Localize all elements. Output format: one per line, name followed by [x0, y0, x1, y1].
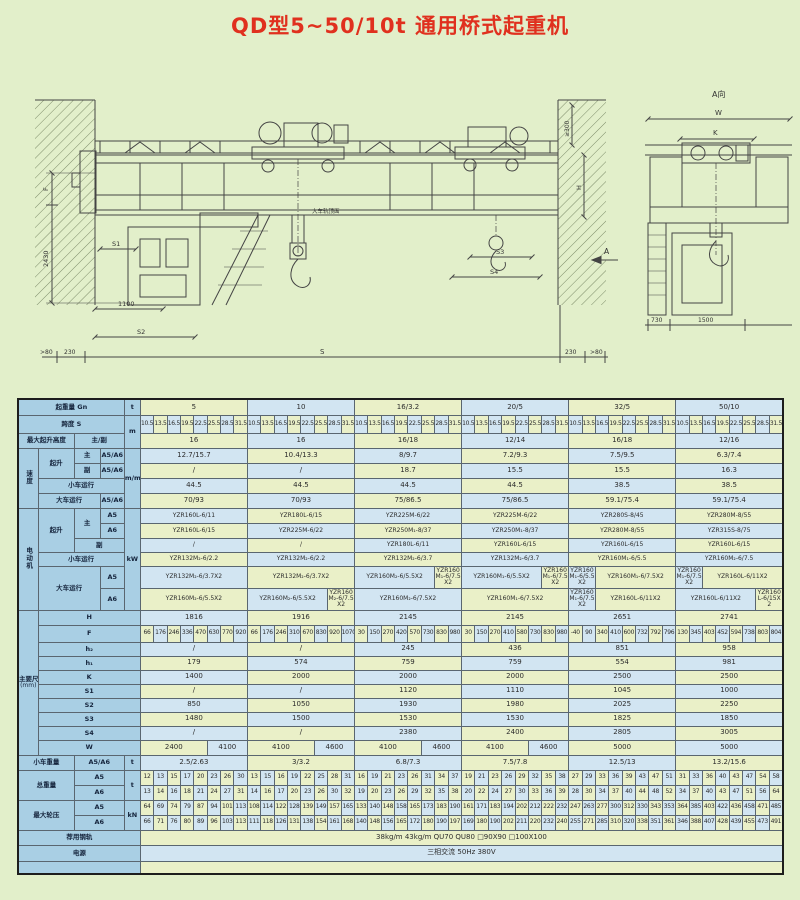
table-cell: 25.5: [636, 415, 649, 433]
table-cell: 14: [154, 785, 167, 800]
table-cell: 4100: [462, 740, 529, 755]
row-label: 大车运行: [38, 493, 100, 508]
table-cell: 89: [194, 815, 207, 830]
table-cell: 58: [769, 770, 783, 785]
table-cell: 10.5: [354, 415, 367, 433]
table-cell: 1120: [354, 684, 461, 698]
table-cell: 1050: [247, 698, 354, 712]
table-cell: /: [247, 463, 354, 478]
table-cell: 16: [261, 785, 274, 800]
table-cell: 5000: [676, 740, 783, 755]
table-cell: 13.5: [582, 415, 595, 433]
table-cell: 738: [743, 625, 756, 642]
table-cell: 69: [154, 800, 167, 815]
table-cell: 330: [636, 800, 649, 815]
table-cell: 128: [288, 800, 301, 815]
table-cell: 20: [462, 785, 475, 800]
table-cell: 1530: [462, 712, 569, 726]
row-label: A5/A6: [100, 463, 124, 478]
table-cell: 22.5: [194, 415, 207, 433]
table-cell: 19.5: [395, 415, 408, 433]
table-cell: 730: [421, 625, 434, 642]
table-cell: YZR250M₁-8/37: [354, 523, 461, 538]
table-cell: YZR132M₂-6/2.2: [140, 552, 247, 566]
table-cell: 161: [328, 815, 341, 830]
table-cell: 407: [702, 815, 715, 830]
table-cell: 28.5: [542, 415, 555, 433]
table-cell: 320: [622, 815, 635, 830]
table-cell: 312: [622, 800, 635, 815]
row-label: 主要尺寸(mm): [18, 610, 38, 755]
table-cell: YZR180L-6/11: [354, 538, 461, 552]
row-label: m/min: [124, 448, 140, 508]
table-cell: 52: [662, 785, 675, 800]
table-cell: 23: [207, 770, 220, 785]
table-cell: 1850: [676, 712, 783, 726]
row-label: 起重量 Gn: [18, 399, 124, 415]
table-cell: 179: [140, 656, 247, 670]
table-cell: 1070: [341, 625, 354, 642]
table-cell: 980: [448, 625, 461, 642]
table-cell: 113: [234, 815, 247, 830]
table-cell: 1480: [140, 712, 247, 726]
table-cell: 1980: [462, 698, 569, 712]
table-cell: 232: [542, 815, 555, 830]
table-cell: 30: [354, 625, 367, 642]
table-cell: 56: [756, 785, 769, 800]
table-cell: YZR160L-6/15: [462, 538, 569, 552]
table-cell: 133: [354, 800, 367, 815]
table-cell: 2400: [140, 740, 207, 755]
table-cell: 16.5: [274, 415, 287, 433]
table-cell: 6.8/7.3: [354, 755, 461, 770]
table-cell: 759: [354, 656, 461, 670]
table-cell: 51: [662, 770, 675, 785]
table-cell: 13.2/15.6: [676, 755, 783, 770]
table-cell: 343: [649, 800, 662, 815]
table-cell: 90: [582, 625, 595, 642]
table-cell: 43: [729, 770, 742, 785]
table-cell: 183: [488, 800, 501, 815]
table-cell: 2145: [354, 610, 461, 625]
table-cell: 194: [502, 800, 515, 815]
table-cell: YZR225M-6/22: [354, 508, 461, 523]
table-cell: 18: [180, 785, 193, 800]
table-cell: YZR132M₂-6/3.7X2: [140, 566, 247, 588]
table-cell: YZR132M₂-6/3.7: [354, 552, 461, 566]
table-cell: 2741: [676, 610, 783, 625]
row-label: A5: [100, 566, 124, 588]
table-cell: 436: [729, 800, 742, 815]
table-cell: 20: [194, 770, 207, 785]
row-label: A6: [74, 785, 124, 800]
table-cell: 39: [555, 785, 568, 800]
table-cell: 66: [247, 625, 260, 642]
row-label: t: [124, 755, 140, 770]
table-cell: 40: [716, 770, 729, 785]
table-cell: 830: [435, 625, 448, 642]
table-cell: 140: [368, 800, 381, 815]
table-cell: 30: [515, 785, 528, 800]
table-cell: /: [140, 684, 247, 698]
table-cell: 161: [462, 800, 475, 815]
table-cell: 36: [702, 770, 715, 785]
row-label: 小车重量: [18, 755, 74, 770]
table-cell: 246: [167, 625, 180, 642]
row-label: A5/A6: [74, 755, 124, 770]
table-cell: 285: [595, 815, 608, 830]
table-cell: 16.5: [488, 415, 501, 433]
table-cell: 165: [408, 800, 421, 815]
table-cell: 26: [314, 785, 327, 800]
table-cell: 554: [569, 656, 676, 670]
crane-drawing: 大车轨顶面 F 2430: [0, 30, 800, 400]
table-cell: 87: [194, 800, 207, 815]
row-label: 主: [74, 448, 100, 463]
table-cell: 31: [421, 770, 434, 785]
table-cell: 31: [234, 785, 247, 800]
table-cell: 156: [381, 815, 394, 830]
table-cell: 19: [462, 770, 475, 785]
table-cell: 10.5: [247, 415, 260, 433]
row-label: kW: [124, 508, 140, 610]
table-cell: YZR160L-6/15X2: [756, 588, 783, 610]
table-cell: 76: [167, 815, 180, 830]
row-label: H: [38, 610, 140, 625]
row-label: h₁: [38, 656, 140, 670]
table-cell: 34: [435, 770, 448, 785]
table-cell: 16.5: [167, 415, 180, 433]
table-cell: 17: [274, 785, 287, 800]
table-cell: 420: [395, 625, 408, 642]
table-cell: 22.5: [729, 415, 742, 433]
table-cell: 47: [743, 770, 756, 785]
table-cell: 75/86.5: [462, 493, 569, 508]
table-cell: 12.7/15.7: [140, 448, 247, 463]
table-cell: 410: [502, 625, 515, 642]
row-label: 小车运行: [38, 478, 124, 493]
table-cell: 29: [515, 770, 528, 785]
table-cell: 148: [368, 815, 381, 830]
table-cell: 4600: [528, 740, 568, 755]
table-cell: 31: [676, 770, 689, 785]
table-cell: 245: [354, 642, 461, 656]
table-cell: 16/3.2: [354, 399, 461, 415]
table-cell: 48: [649, 785, 662, 800]
row-label: A5: [74, 770, 124, 785]
row-label: 电动机: [18, 508, 38, 610]
dim-ge300: ≥300: [564, 120, 571, 137]
table-cell: YZR160L-6/11: [140, 508, 247, 523]
table-cell: YZR180L-6/15: [247, 508, 354, 523]
table-cell: 255: [569, 815, 582, 830]
table-cell: 30: [328, 785, 341, 800]
table-cell: 22.5: [622, 415, 635, 433]
table-cell: 20: [288, 785, 301, 800]
row-label: 副: [74, 538, 124, 552]
table-cell: 13: [140, 785, 153, 800]
table-cell: 96: [207, 815, 220, 830]
table-cell: 580: [515, 625, 528, 642]
table-cell: 25: [314, 770, 327, 785]
row-label: t: [124, 770, 140, 800]
table-cell: /: [247, 642, 354, 656]
table-cell: 351: [649, 815, 662, 830]
table-cell: 13.5: [475, 415, 488, 433]
table-cell: 270: [381, 625, 394, 642]
table-cell: YZR160M₁-6/7.5X2: [462, 588, 569, 610]
table-cell: 1530: [354, 712, 461, 726]
table-cell: YZR132M₂-6/3.7: [462, 552, 569, 566]
table-cell: 473: [756, 815, 769, 830]
table-cell: 10.5: [140, 415, 153, 433]
table-cell: 150: [368, 625, 381, 642]
table-cell: 22: [475, 785, 488, 800]
table-cell: 130: [676, 625, 689, 642]
table-cell: 2.5/2.63: [140, 755, 247, 770]
table-cell: 70/93: [247, 493, 354, 508]
table-cell: 38: [448, 785, 461, 800]
dim-230-right: 230: [565, 349, 577, 356]
table-cell: 222: [542, 800, 555, 815]
row-label: 起升: [38, 508, 74, 552]
row-label: h₂: [38, 642, 140, 656]
table-cell: 44: [636, 785, 649, 800]
aux-trolley: [455, 127, 528, 270]
table-cell: 2000: [247, 670, 354, 684]
table-cell: YZR160M₁-6/5.5X2: [462, 566, 542, 588]
row-label: A6: [100, 523, 124, 538]
table-cell: 21: [194, 785, 207, 800]
table-cell: 410: [609, 625, 622, 642]
table-cell: 570: [408, 625, 421, 642]
table-cell: 28.5: [328, 415, 341, 433]
dim-s3-s4: S3 S4: [452, 248, 540, 277]
dim-span-s: S: [320, 348, 325, 356]
table-cell: 150: [475, 625, 488, 642]
table-cell: 173: [421, 800, 434, 815]
table-cell: 31.5: [234, 415, 247, 433]
table-cell: 71: [154, 815, 167, 830]
table-cell: 180: [475, 815, 488, 830]
table-cell: 7.2/9.3: [462, 448, 569, 463]
table-cell: YZR160L-6/15: [569, 538, 676, 552]
table-cell: 16: [140, 433, 247, 448]
table-cell: 27: [569, 770, 582, 785]
table-cell: /: [140, 463, 247, 478]
table-cell: 980: [555, 625, 568, 642]
table-cell: YZR280M-8/55: [676, 508, 783, 523]
table-cell: YZR160M₁-6/7.5X2: [595, 566, 675, 588]
table-cell: 180: [421, 815, 434, 830]
table-cell: 31.5: [448, 415, 461, 433]
table-cell: 263: [582, 800, 595, 815]
table-cell: 850: [140, 698, 247, 712]
row-label: A5/A6: [100, 448, 124, 463]
table-cell: 131: [288, 815, 301, 830]
table-cell: 59.1/75.4: [569, 493, 676, 508]
right-wall-hatch: [558, 100, 606, 363]
end-view-title: A向: [712, 89, 725, 99]
table-cell: YZR280M-8/55: [569, 523, 676, 538]
row-label: S1: [38, 684, 140, 698]
table-cell: 2145: [462, 610, 569, 625]
table-cell: 35: [435, 785, 448, 800]
row-label: t: [124, 399, 140, 415]
table-cell: 32: [421, 785, 434, 800]
table-cell: 2000: [354, 670, 461, 684]
table-cell: 1110: [462, 684, 569, 698]
table-cell: 79: [180, 800, 193, 815]
table-cell: 2400: [462, 726, 569, 740]
table-cell: YZR160M₂-6/5.5X2: [247, 588, 327, 610]
table-cell: 5000: [569, 740, 676, 755]
table-cell: 12/16: [676, 433, 783, 448]
table-cell: 310: [288, 625, 301, 642]
row-label: [18, 861, 140, 874]
table-cell: 353: [662, 800, 675, 815]
table-cell: 22.5: [408, 415, 421, 433]
table-cell: 16: [354, 770, 367, 785]
table-cell: YZR160M₁-6/7.5X2: [676, 566, 703, 588]
table-cell: 13: [247, 770, 260, 785]
table-cell: 29: [582, 770, 595, 785]
table-cell: YZR160M₂-6/5.5X2: [140, 588, 247, 610]
table-cell: 436: [462, 642, 569, 656]
table-cell: 21: [381, 770, 394, 785]
table-cell: 338: [636, 815, 649, 830]
table-cell: YZR250M₁-8/37: [462, 523, 569, 538]
table-cell: 50/10: [676, 399, 783, 415]
table-cell: 38: [555, 770, 568, 785]
driver-cab: [128, 213, 270, 305]
dim-k: K: [713, 129, 718, 137]
table-cell: 157: [328, 800, 341, 815]
table-cell: 36: [542, 785, 555, 800]
table-cell: 470: [194, 625, 207, 642]
table-cell: 958: [676, 642, 783, 656]
table-cell: 47: [649, 770, 662, 785]
table-cell: 770: [221, 625, 234, 642]
table-cell: 40: [622, 785, 635, 800]
table-cell: 44.5: [247, 478, 354, 493]
row-label: A5/A6: [100, 493, 124, 508]
table-cell: 13.5: [368, 415, 381, 433]
table-cell: 13.5: [154, 415, 167, 433]
table-cell: 31: [341, 770, 354, 785]
table-cell: 23: [395, 770, 408, 785]
table-cell: 113: [234, 800, 247, 815]
row-label: A5: [74, 800, 124, 815]
table-cell: 33: [689, 770, 702, 785]
table-cell: 26: [221, 770, 234, 785]
row-label: 荐用钢轨: [18, 830, 140, 845]
table-cell: 19.5: [502, 415, 515, 433]
table-cell: 25.5: [421, 415, 434, 433]
table-cell: 1930: [354, 698, 461, 712]
dim-2430: 2430: [42, 250, 50, 267]
table-cell: 12.5/13: [569, 755, 676, 770]
table-cell: 300: [609, 800, 622, 815]
table-cell: 212: [528, 800, 541, 815]
table-cell: 74: [167, 800, 180, 815]
table-cell: 981: [676, 656, 783, 670]
table-cell: 25.5: [743, 415, 756, 433]
row-label: W: [38, 740, 140, 755]
dim-h: H: [575, 185, 583, 190]
table-cell: 32: [341, 785, 354, 800]
table-cell: 94: [207, 800, 220, 815]
table-cell: 1500: [247, 712, 354, 726]
table-cell: 1400: [140, 670, 247, 684]
row-label: 主/副: [74, 433, 124, 448]
table-cell: 23: [381, 785, 394, 800]
table-cell: 7.5/7.8: [462, 755, 569, 770]
dim-s4: S4: [490, 268, 498, 276]
table-cell: 13: [154, 770, 167, 785]
table-cell: 364: [676, 800, 689, 815]
row-label: 最大起升高度: [18, 433, 74, 448]
table-cell: 10.5: [462, 415, 475, 433]
table-cell: 920: [234, 625, 247, 642]
row-label: 电源: [18, 845, 140, 861]
row-label: A6: [74, 815, 124, 830]
dim-baseline: >80 230 S 230 >80: [40, 348, 608, 363]
table-cell: 2250: [676, 698, 783, 712]
table-cell: /: [140, 726, 247, 740]
table-cell: YZR160M₂-6/5.5X2: [354, 566, 434, 588]
table-cell: 385: [689, 800, 702, 815]
table-cell: 2380: [354, 726, 461, 740]
table-cell: 16.5: [702, 415, 715, 433]
table-cell: 108: [247, 800, 260, 815]
table-cell: 24: [488, 785, 501, 800]
table-cell: 111: [247, 815, 260, 830]
table-cell: 15: [167, 770, 180, 785]
rail-note-label: 大车轨顶面: [312, 207, 340, 215]
table-cell: YZR160M₁-6/7.5X2: [435, 566, 462, 588]
table-cell: 44.5: [462, 478, 569, 493]
table-cell: YZR225M-6/22: [462, 508, 569, 523]
table-cell: 28.5: [435, 415, 448, 433]
table-cell: 31.5: [555, 415, 568, 433]
table-cell: 122: [274, 800, 287, 815]
table-cell: YZR160M₂-6/7.5X2: [328, 588, 355, 610]
table-cell: 118: [261, 815, 274, 830]
table-cell: 28.5: [221, 415, 234, 433]
table-cell: 16/18: [354, 433, 461, 448]
table-cell: 138: [301, 815, 314, 830]
table-cell: 149: [314, 800, 327, 815]
table-cell: 336: [180, 625, 193, 642]
table-cell: 670: [301, 625, 314, 642]
table-cell: 103: [221, 815, 234, 830]
table-cell: 792: [649, 625, 662, 642]
table-cell: 346: [676, 815, 689, 830]
dim-gt80-left: >80: [40, 349, 53, 356]
table-cell: YZR160M₁-6/5.5: [569, 552, 676, 566]
table-cell: 16/18: [569, 433, 676, 448]
hook: [290, 159, 310, 287]
dim-s2: S2: [137, 328, 145, 336]
table-cell: 158: [395, 800, 408, 815]
table-cell: 34: [676, 785, 689, 800]
table-cell: YZR280S-8/45: [569, 508, 676, 523]
table-cell: 471: [756, 800, 769, 815]
table-cell: 13.5: [261, 415, 274, 433]
table-cell: 35: [542, 770, 555, 785]
table-cell: 26: [395, 785, 408, 800]
